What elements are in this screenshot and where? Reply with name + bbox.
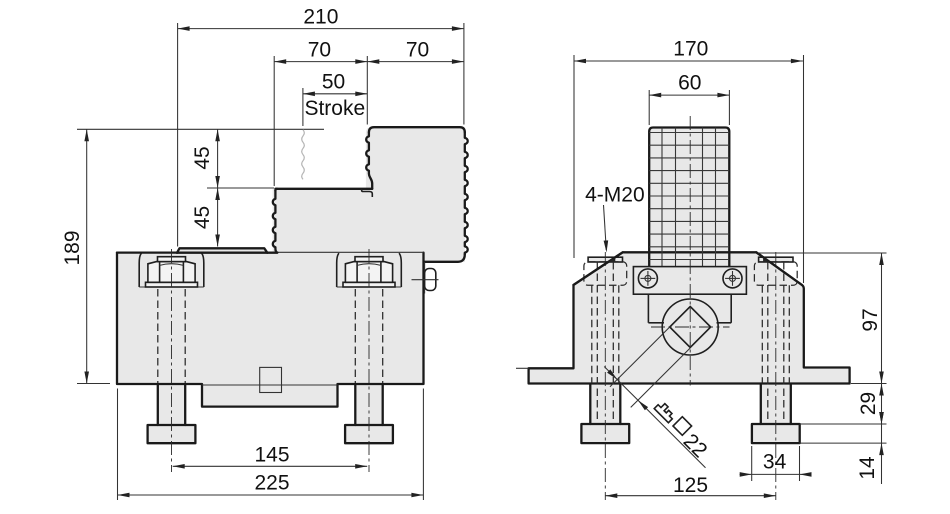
svg-text:45: 45 bbox=[191, 206, 214, 229]
svg-text:125: 125 bbox=[673, 474, 708, 497]
svg-text:70: 70 bbox=[406, 39, 429, 62]
svg-text:170: 170 bbox=[673, 38, 708, 61]
svg-text:70: 70 bbox=[308, 39, 331, 62]
svg-text:97: 97 bbox=[859, 308, 882, 331]
svg-text:145: 145 bbox=[254, 444, 289, 467]
svg-text:Stroke: Stroke bbox=[304, 97, 365, 120]
svg-text:225: 225 bbox=[254, 472, 289, 495]
svg-text:14: 14 bbox=[856, 456, 879, 480]
svg-text:60: 60 bbox=[678, 72, 701, 95]
svg-text:189: 189 bbox=[61, 230, 84, 265]
svg-text:29: 29 bbox=[857, 392, 880, 415]
svg-text:45: 45 bbox=[191, 146, 214, 169]
svg-text:210: 210 bbox=[303, 6, 338, 29]
svg-text:4-M20: 4-M20 bbox=[585, 184, 645, 207]
svg-text:50: 50 bbox=[322, 71, 345, 94]
svg-text:34: 34 bbox=[763, 451, 787, 474]
